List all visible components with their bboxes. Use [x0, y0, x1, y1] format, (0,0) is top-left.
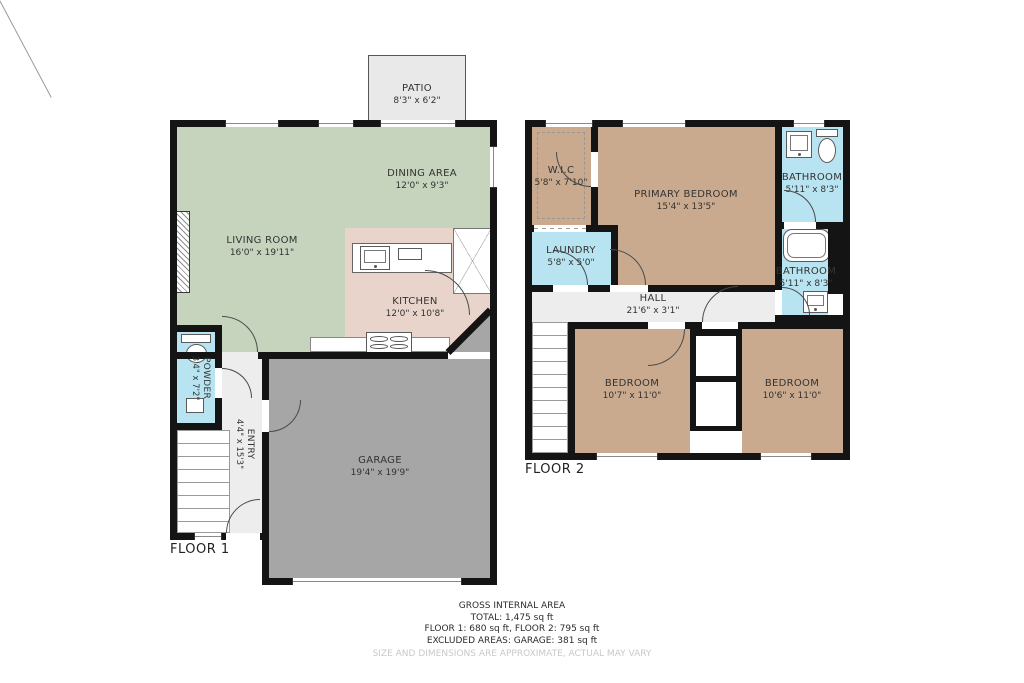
- door-gap-garage: [262, 400, 269, 432]
- window: [622, 120, 686, 127]
- room-label-hall: HALL 21'6" x 3'1": [593, 293, 713, 317]
- room-dims: 19'4" x 19'9": [315, 468, 445, 479]
- wall: [775, 315, 850, 322]
- door-gap-laundry: [553, 285, 588, 292]
- room-label-bathroom-mid: BATHROOM 5'11" x 8'3": [761, 266, 851, 290]
- room-dims: 5'11" x 8'3": [761, 279, 851, 290]
- window: [760, 453, 812, 460]
- room-name: POWDER: [200, 343, 211, 413]
- closet: [696, 336, 736, 376]
- patio-slider-door: [380, 120, 456, 127]
- powder-toilet-tank: [181, 334, 211, 343]
- room-name: PRIMARY BEDROOM: [611, 189, 761, 202]
- summary-title: GROSS INTERNAL AREA: [0, 601, 1024, 613]
- stairs-run-line: [0, 0, 52, 98]
- stove: [366, 332, 412, 353]
- island-cooktop: [398, 248, 422, 260]
- wall: [525, 322, 850, 329]
- room-name: BEDROOM: [732, 378, 852, 391]
- room-name: BATHROOM: [767, 172, 857, 185]
- room-label-living: LIVING ROOM 16'0" x 19'11": [197, 235, 327, 259]
- stairs-floor2: [532, 322, 568, 453]
- room-label-patio: PATIO 8'3" x 6'2": [367, 83, 467, 107]
- room-label-wic: W.I.C 5'8" x 7'10": [516, 165, 606, 189]
- bathroom-top-toilet-bowl: [818, 138, 836, 163]
- room-label-laundry: LAUNDRY 5'8" x 5'0": [521, 245, 621, 269]
- door-gap-bathroom-top: [784, 222, 816, 229]
- room-dims: 10'6" x 11'0": [732, 391, 852, 402]
- room-dims: 3'4" x 7'2": [189, 343, 200, 413]
- room-label-bedroom-right: BEDROOM 10'6" x 11'0": [732, 378, 852, 402]
- bathtub: [783, 229, 830, 262]
- room-name: GARAGE: [315, 455, 445, 468]
- floor-plan-canvas: PATIO 8'3" x 6'2" DINING AREA 12'0" x 9'…: [0, 0, 1024, 683]
- door-gap-bedroom-right: [702, 322, 738, 329]
- room-label-bathroom-top: BATHROOM 5'11" x 8'3": [767, 172, 857, 196]
- pantry: [453, 228, 492, 294]
- floor1-label: FLOOR 1: [170, 542, 230, 557]
- room-label-entry: ENTRY 4'4" x 15'3": [225, 409, 255, 479]
- area-summary: GROSS INTERNAL AREA TOTAL: 1,475 sq ft F…: [0, 601, 1024, 660]
- room-label-dining: DINING AREA 12'0" x 9'3": [362, 168, 482, 192]
- room-dims: 4'4" x 15'3": [233, 409, 244, 479]
- wall: [262, 352, 269, 585]
- room-dims: 12'0" x 9'3": [362, 181, 482, 192]
- door-gap-primary: [610, 285, 648, 292]
- kitchen-sink: [360, 246, 390, 270]
- room-label-bedroom-left: BEDROOM 10'7" x 11'0": [572, 378, 692, 402]
- room-name: BEDROOM: [572, 378, 692, 391]
- room-dims: 10'7" x 11'0": [572, 391, 692, 402]
- door-gap-bathroom-mid: [775, 290, 782, 315]
- summary-excluded: EXCLUDED AREAS: GARAGE: 381 sq ft: [0, 636, 1024, 648]
- window: [490, 146, 497, 188]
- wall: [258, 352, 448, 359]
- garage-door: [292, 578, 462, 585]
- room-name: PATIO: [367, 83, 467, 96]
- window: [318, 120, 354, 127]
- room-name: W.I.C: [516, 165, 606, 178]
- interior-window: [534, 225, 586, 232]
- window: [793, 120, 825, 127]
- stairs-floor1: [177, 430, 230, 533]
- window: [545, 120, 593, 127]
- room-name: HALL: [593, 293, 713, 306]
- closet: [696, 382, 736, 426]
- room-dims: 12'0" x 10'8": [350, 309, 480, 320]
- room-dims: 5'11" x 8'3": [767, 185, 857, 196]
- room-label-primary-bedroom: PRIMARY BEDROOM 15'4" x 13'5": [611, 189, 761, 213]
- summary-disclaimer: SIZE AND DIMENSIONS ARE APPROXIMATE, ACT…: [0, 649, 1024, 661]
- room-name: BATHROOM: [761, 266, 851, 279]
- room-name: LIVING ROOM: [197, 235, 327, 248]
- room-label-garage: GARAGE 19'4" x 19'9": [315, 455, 445, 479]
- bathroom-top-sink: [786, 131, 812, 158]
- room-name: ENTRY: [244, 409, 255, 479]
- window: [225, 120, 279, 127]
- room-dims: 5'8" x 7'10": [516, 178, 606, 189]
- room-name: DINING AREA: [362, 168, 482, 181]
- room-label-kitchen: KITCHEN 12'0" x 10'8": [350, 296, 480, 320]
- room-name: LAUNDRY: [521, 245, 621, 258]
- door-gap-powder: [215, 368, 222, 398]
- window: [194, 533, 222, 540]
- room-label-powder: POWDER 3'4" x 7'2": [181, 343, 211, 413]
- room-dims: 15'4" x 13'5": [611, 202, 761, 213]
- room-dims: 21'6" x 3'1": [593, 306, 713, 317]
- wall: [490, 120, 497, 585]
- summary-total: TOTAL: 1,475 sq ft: [0, 613, 1024, 625]
- room-dims: 16'0" x 19'11": [197, 248, 327, 259]
- room-name: KITCHEN: [350, 296, 480, 309]
- room-dims: 5'8" x 5'0": [521, 258, 621, 269]
- wall: [170, 423, 222, 430]
- summary-floors: FLOOR 1: 680 sq ft, FLOOR 2: 795 sq ft: [0, 624, 1024, 636]
- bathroom-top-toilet-tank: [816, 129, 838, 137]
- door-gap-bedroom-left: [648, 322, 685, 329]
- window: [596, 453, 658, 460]
- room-dims: 8'3" x 6'2": [367, 96, 467, 107]
- door-gap-front: [226, 533, 260, 540]
- floor2-label: FLOOR 2: [525, 462, 585, 477]
